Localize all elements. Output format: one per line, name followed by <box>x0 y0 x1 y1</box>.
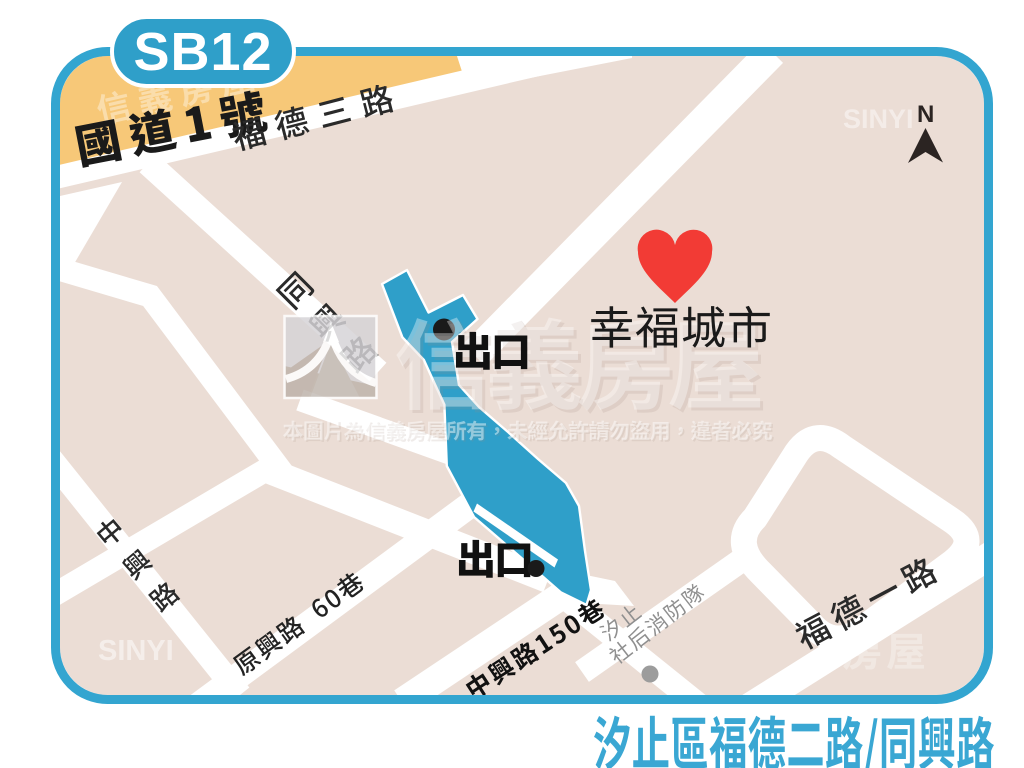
svg-text:N: N <box>917 101 934 128</box>
svg-text:SB12: SB12 <box>133 22 272 82</box>
svg-text:SINYI: SINYI <box>98 635 174 667</box>
svg-text:SINYI: SINYI <box>843 104 914 134</box>
